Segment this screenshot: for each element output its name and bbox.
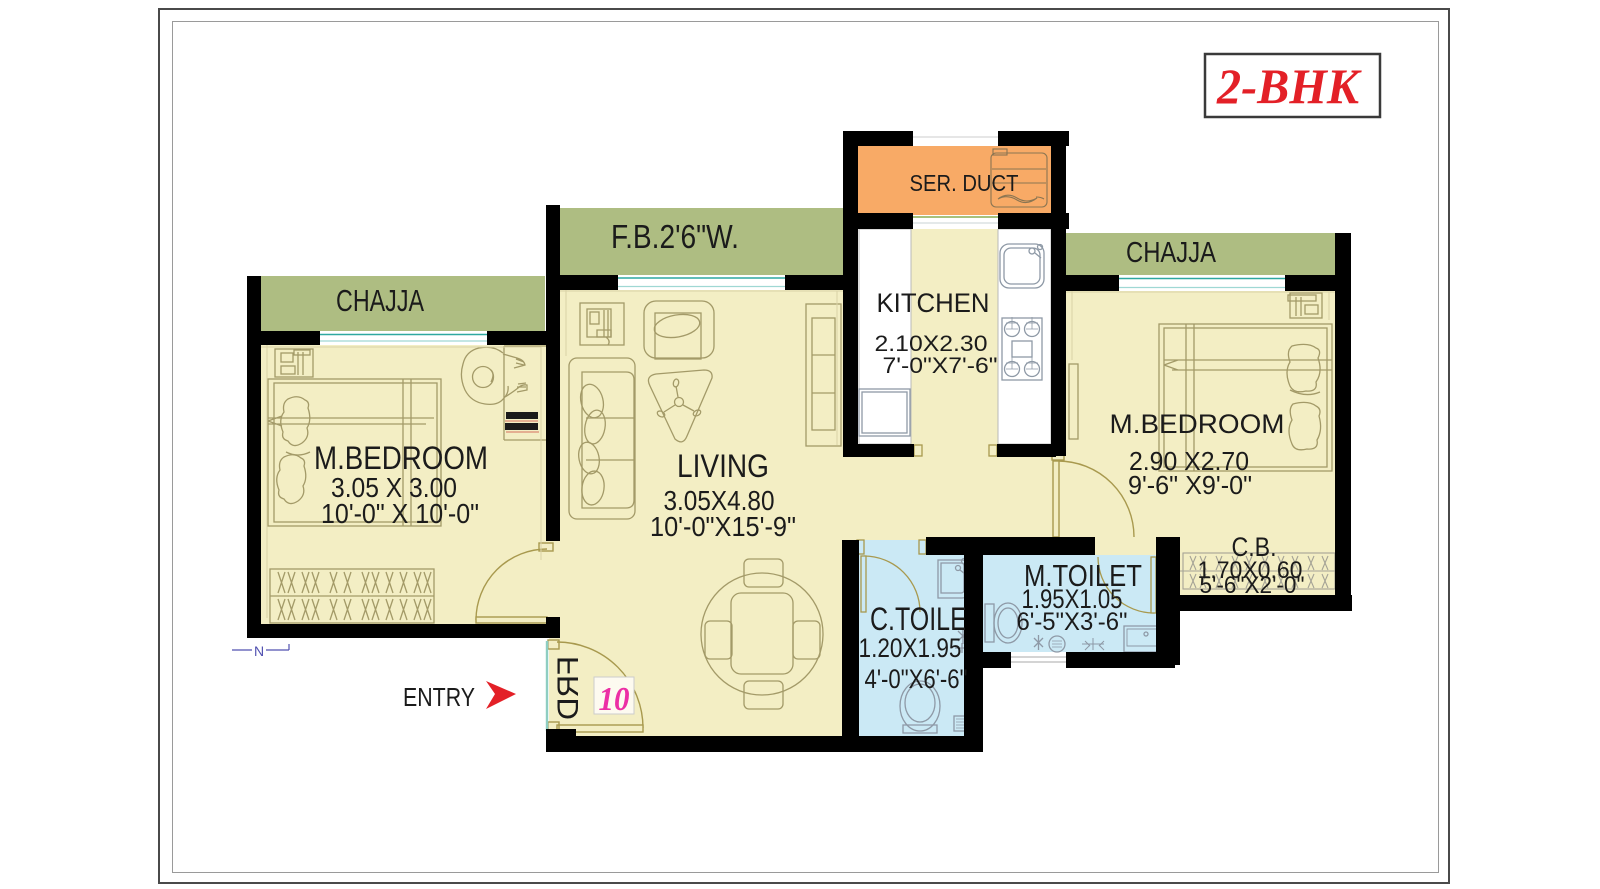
svg-text:10: 10 [599, 681, 630, 718]
svg-text:10'-0" X 10'-0": 10'-0" X 10'-0" [321, 498, 479, 529]
svg-text:F.B.2'6"W.: F.B.2'6"W. [611, 218, 739, 255]
svg-text:M.BEDROOM: M.BEDROOM [1110, 409, 1285, 439]
svg-text:KITCHEN: KITCHEN [877, 288, 990, 318]
svg-text:2-BHK: 2-BHK [1216, 58, 1362, 114]
svg-text:4'-0"X6'-6": 4'-0"X6'-6" [865, 664, 968, 694]
svg-text:LIVING: LIVING [677, 448, 769, 484]
svg-text:7'-0"X7'-6": 7'-0"X7'-6" [883, 353, 998, 378]
svg-text:5'-6"X2'-0": 5'-6"X2'-0" [1200, 572, 1305, 599]
svg-text:CHAJJA: CHAJJA [1126, 237, 1217, 269]
svg-text:CHAJJA: CHAJJA [336, 283, 424, 318]
svg-text:9'-6" X9'-0": 9'-6" X9'-0" [1128, 470, 1252, 500]
svg-text:N: N [254, 643, 264, 659]
svg-text:6'-5"X3'-6": 6'-5"X3'-6" [1017, 608, 1128, 636]
svg-text:SER. DUCT: SER. DUCT [910, 170, 1019, 196]
svg-text:1.20X1.95: 1.20X1.95 [859, 633, 962, 663]
svg-text:10'-0"X15'-9": 10'-0"X15'-9" [650, 511, 796, 542]
svg-text:M.BEDROOM: M.BEDROOM [314, 440, 488, 476]
svg-text:ENTRY: ENTRY [403, 682, 475, 712]
svg-text:FRD: FRD [552, 656, 585, 720]
